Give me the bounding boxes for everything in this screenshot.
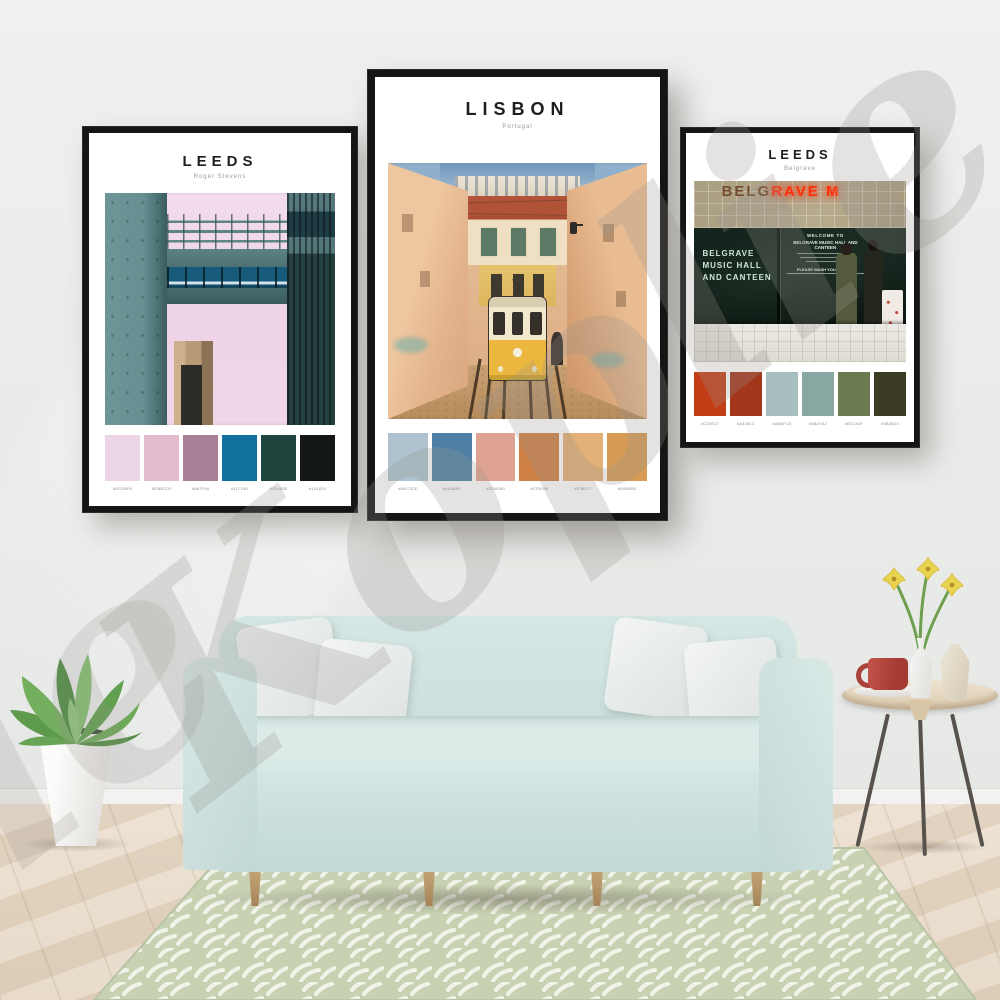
tram-window [512, 312, 524, 335]
pedestrian-head [868, 240, 878, 251]
color-label: #E3B177 [563, 486, 603, 491]
window-line: BELGRAVE MUSIC HALL AND CANTEEN [787, 240, 863, 250]
poster-photo-lisbon-tram [388, 163, 647, 419]
color-chip [261, 435, 296, 481]
street-wall-left [388, 163, 468, 419]
color-chip [838, 372, 870, 416]
shuttered-window [510, 227, 528, 257]
color-label: #AEC3CF [388, 486, 428, 491]
poster-photo-brutalist-building [105, 193, 335, 425]
shuttered-window [480, 227, 498, 257]
color-swatch: #A8BFC0 [766, 372, 798, 426]
color-swatch: #ECD6E5 [105, 435, 140, 491]
window-line: AND CANTEEN [702, 272, 771, 284]
sofa-armrest-right [759, 658, 833, 870]
concrete-tower [105, 193, 167, 425]
bridge-windows [167, 267, 287, 288]
table-leg [855, 714, 889, 847]
pedestrian-figure [864, 250, 883, 331]
color-chip [563, 433, 603, 481]
sofa-floor-shadow [189, 884, 827, 914]
tram-number-plate [513, 348, 521, 357]
graffiti [591, 352, 625, 368]
color-swatch: #141815 [300, 435, 335, 491]
color-swatch: #DDA390 [476, 433, 516, 491]
color-swatch: #C33E17 [694, 372, 726, 426]
color-chip [105, 435, 140, 481]
palette-row: #C33E17 #A4361C #A8BFC0 #88A7A2 #6C7A4F … [694, 372, 906, 426]
wall-window [603, 224, 614, 242]
sofa-armrest-left [183, 658, 257, 870]
poster-leeds-roger-stevens: LEEDS Roger Stevens #ECD6E5 #E3BCCD #A87… [83, 127, 357, 512]
louvered-facade [287, 193, 335, 425]
window-lettering-left: BELGRAVE MUSIC HALL AND CANTEEN [702, 248, 771, 284]
color-label: #CF8146 [519, 486, 559, 491]
color-swatch: #6C7A4F [838, 372, 870, 426]
color-chip [874, 372, 906, 416]
color-chip [222, 435, 257, 481]
color-swatch: #CF8146 [519, 433, 559, 491]
color-chip [388, 433, 428, 481]
pedestrian-figure [836, 253, 857, 329]
color-label: #DDA390 [476, 486, 516, 491]
poster-title: LEEDS [686, 147, 914, 162]
tram-window [530, 312, 542, 335]
poster-subtitle: Belgrave [686, 166, 914, 172]
color-swatch: #E3BCCD [144, 435, 179, 491]
color-label: #88A7A2 [802, 421, 834, 426]
color-label: #6C7A4F [838, 421, 870, 426]
color-swatch: #D69B55 [607, 433, 647, 491]
window-line: MUSIC HALL [702, 260, 771, 272]
house-window [491, 274, 502, 298]
palette-row: #ECD6E5 #E3BCCD #A87F94 #11719D #1D453E … [105, 435, 335, 491]
lower-structure-opening [181, 365, 202, 425]
color-label: #D69B55 [607, 486, 647, 491]
color-chip [730, 372, 762, 416]
poster-subtitle: Roger Stevens [89, 174, 351, 180]
color-chip [519, 433, 559, 481]
potted-plant [6, 636, 146, 852]
color-label: #A4361C [730, 421, 762, 426]
color-swatch: #88A7A2 [802, 372, 834, 426]
white-tile-base [694, 324, 906, 362]
pedestrian-head [841, 243, 852, 255]
color-swatch: #4E80A5 [432, 433, 472, 491]
color-chip [802, 372, 834, 416]
sofa-seat [209, 716, 807, 872]
color-swatch: #3B3B24 [874, 372, 906, 426]
plant-leaves [6, 636, 146, 761]
color-chip [766, 372, 798, 416]
wall-window [402, 214, 413, 232]
graffiti [394, 337, 428, 353]
poster-subtitle: Portugal [375, 124, 660, 130]
color-label: #3B3B24 [874, 421, 906, 426]
color-swatch: #E3B177 [563, 433, 603, 491]
living-room-poster-mockup: LEEDS Roger Stevens #ECD6E5 #E3BCCD #A87… [0, 0, 1000, 1000]
tram-headlight [498, 366, 503, 372]
tram-window [493, 312, 505, 335]
table-hub [908, 700, 932, 720]
pedestrian-silhouette [551, 332, 563, 365]
tiled-fascia: BELGRAVE M [694, 181, 906, 228]
poster-lisbon: LISBON Portugal [368, 70, 667, 520]
poster-leeds-belgrave: LEEDS Belgrave BELGRAVE M BELGRAVE MUSIC… [681, 128, 919, 447]
color-swatch: #A87F94 [183, 435, 218, 491]
color-chip [694, 372, 726, 416]
color-label: #141815 [300, 486, 335, 491]
color-label: #11719D [222, 486, 257, 491]
color-label: #ECD6E5 [105, 486, 140, 491]
color-chip [476, 433, 516, 481]
sofa [183, 616, 833, 906]
color-label: #E3BCCD [144, 486, 179, 491]
table-leg [950, 714, 984, 847]
yellow-tram [488, 296, 548, 380]
color-swatch: #1D453E [261, 435, 296, 491]
neon-sign: BELGRAVE M [722, 183, 841, 200]
color-swatch: #11719D [222, 435, 257, 491]
tram-headlight [532, 366, 537, 372]
color-chip [183, 435, 218, 481]
bridge-underside [167, 288, 287, 304]
shuttered-window [539, 227, 557, 257]
window-line: BELGRAVE [702, 248, 771, 260]
color-label: #C33E17 [694, 421, 726, 426]
red-roof-house [468, 196, 566, 265]
neon-sign-lit: RAVE M [771, 183, 840, 200]
street-wall-right [567, 163, 647, 419]
table-leg [918, 716, 927, 856]
color-chip [300, 435, 335, 481]
window-line: WELCOME TO [787, 233, 863, 238]
poster-title: LEEDS [89, 153, 351, 170]
red-mug [868, 658, 908, 690]
color-label: #4E80A5 [432, 486, 472, 491]
wall-window [616, 291, 626, 307]
palette-row: #AEC3CF #4E80A5 #DDA390 #CF8146 #E3B177 … [388, 433, 647, 491]
color-chip [607, 433, 647, 481]
color-swatch: #AEC3CF [388, 433, 428, 491]
color-label: #A87F94 [183, 486, 218, 491]
poster-title: LISBON [375, 99, 660, 120]
bridge-deck [167, 249, 287, 268]
color-chip [432, 433, 472, 481]
color-swatch: #A4361C [730, 372, 762, 426]
tram-body [488, 296, 548, 380]
poster-photo-belgrave-storefront: BELGRAVE M BELGRAVE MUSIC HALL AND CANTE… [694, 181, 906, 362]
neon-sign-unlit: BELG [722, 183, 772, 200]
tripod-side-table [842, 548, 998, 858]
wall-window [420, 271, 430, 287]
color-label: #A8BFC0 [766, 421, 798, 426]
street-lamp [570, 222, 577, 234]
color-chip [144, 435, 179, 481]
color-label: #1D453E [261, 486, 296, 491]
bridge-railing [167, 214, 287, 249]
house-window [533, 274, 544, 298]
window-mullion [777, 228, 780, 324]
